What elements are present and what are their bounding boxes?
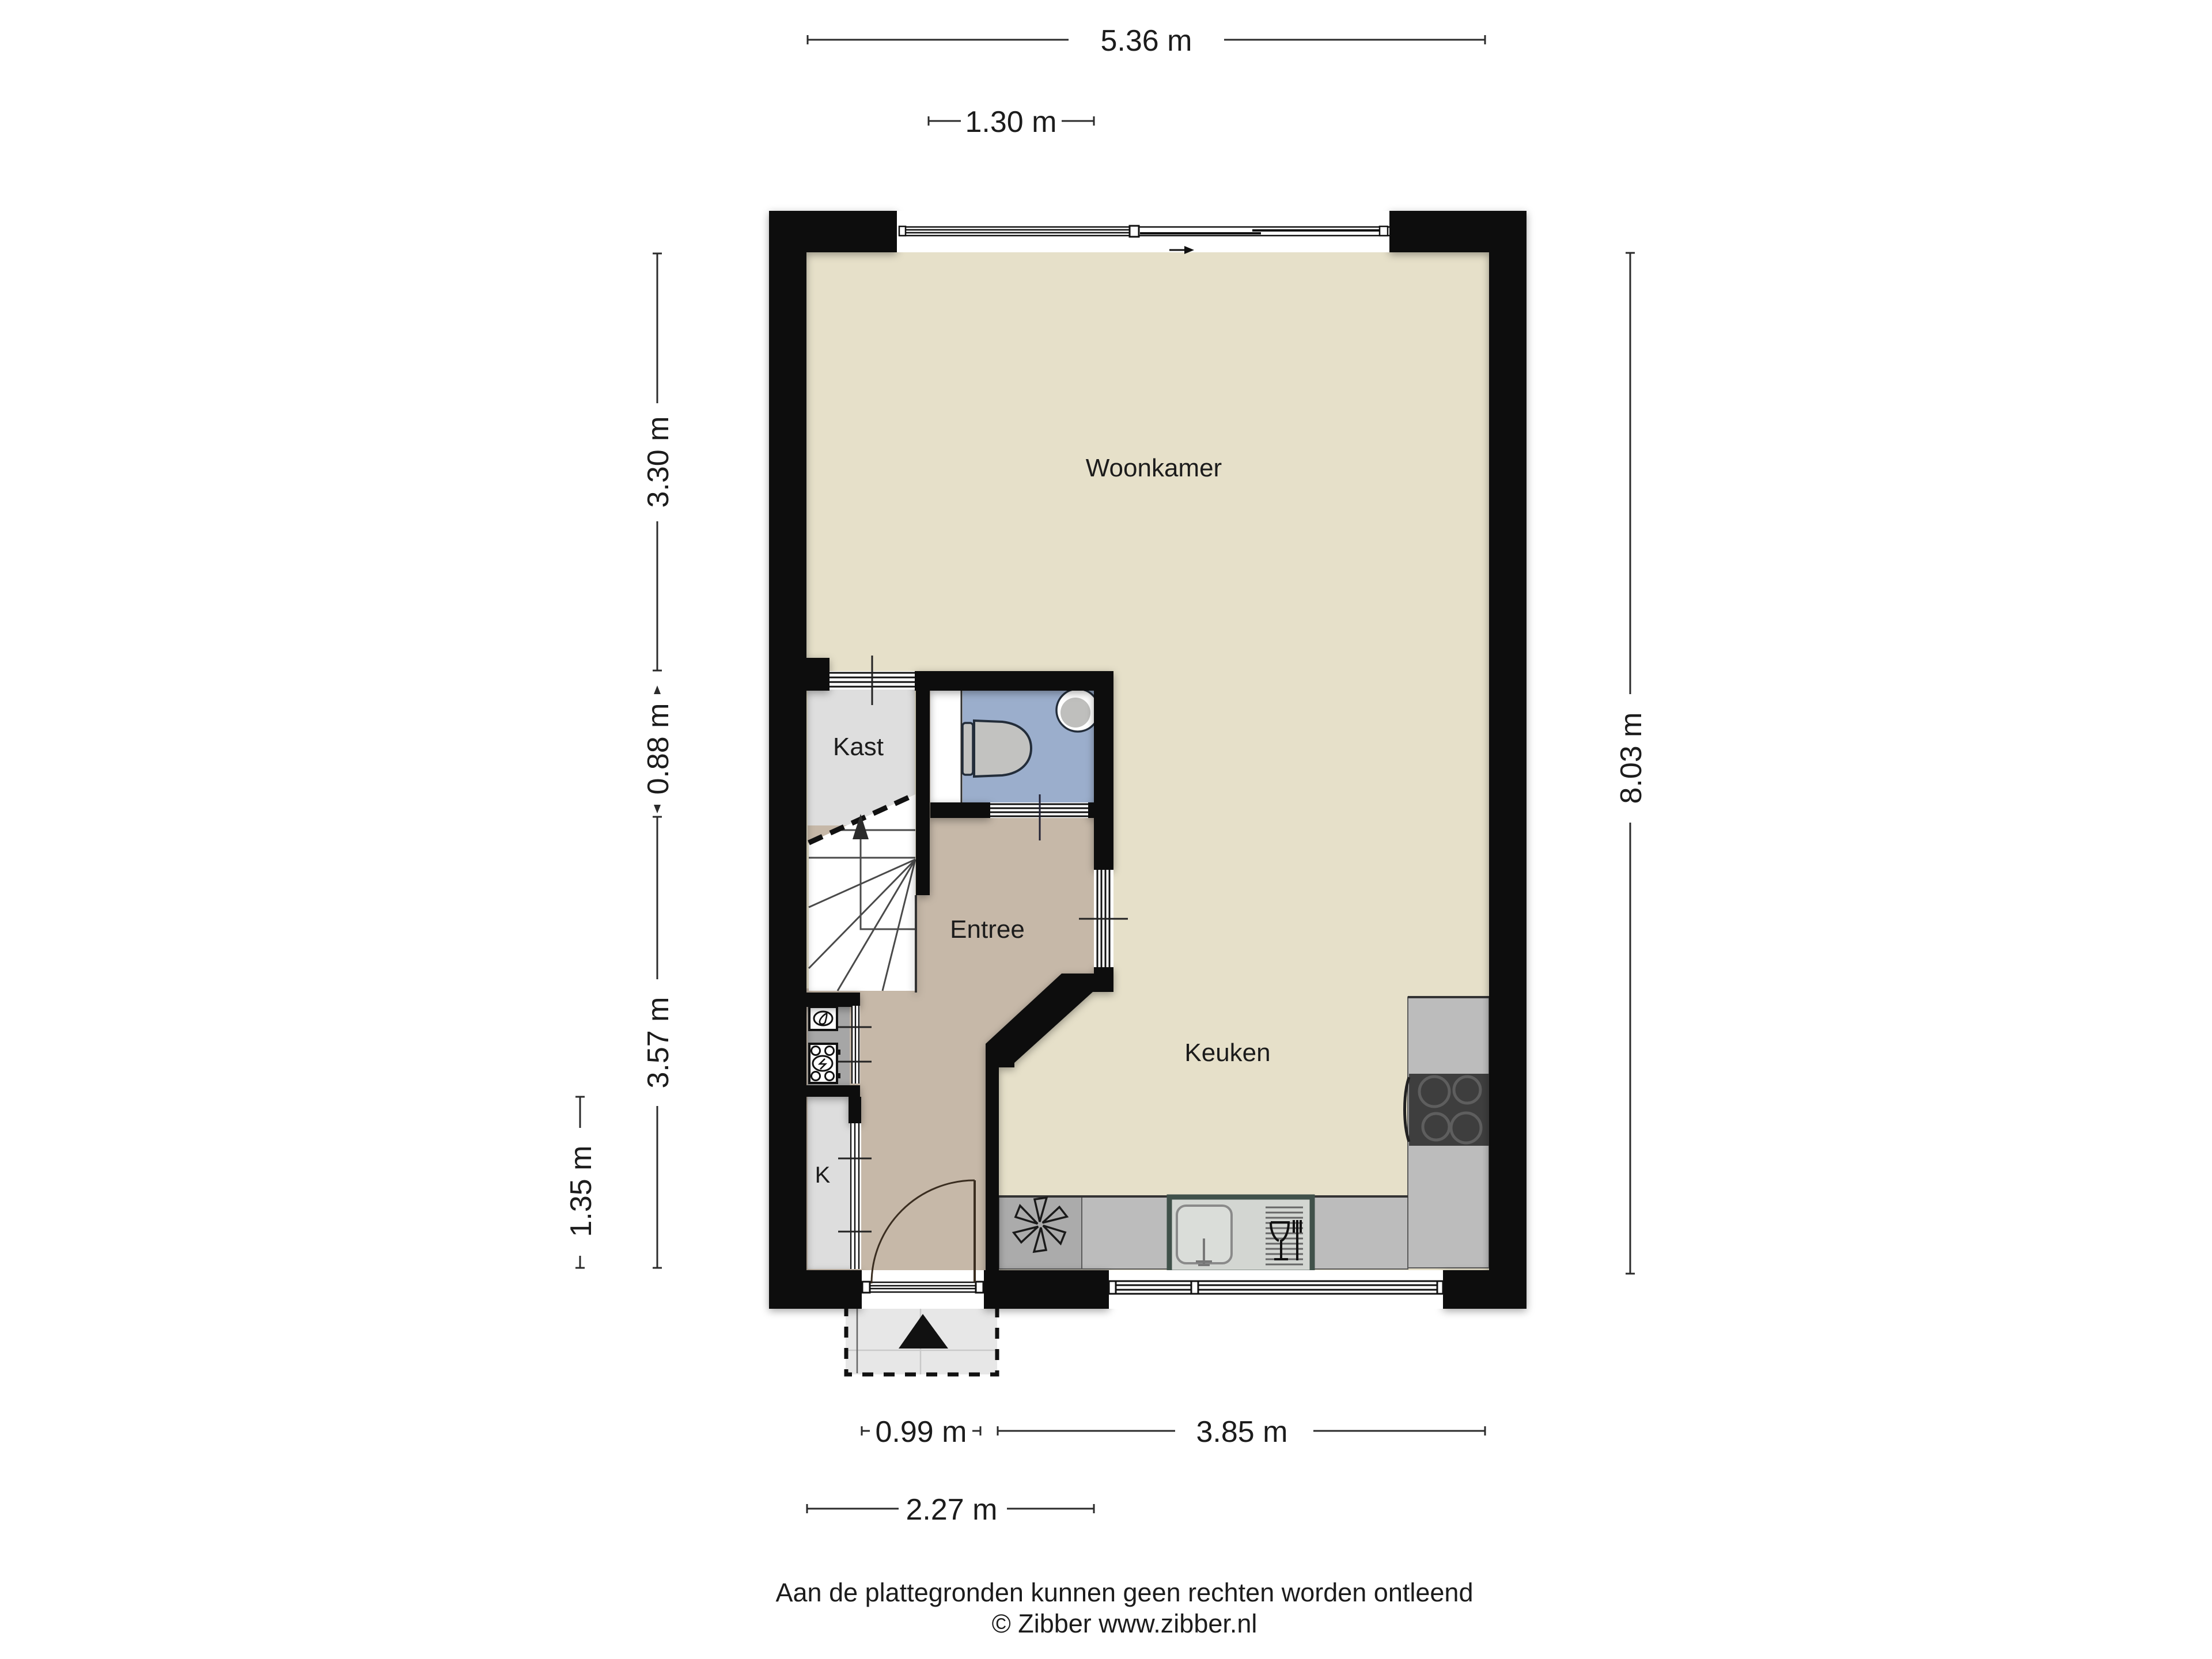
svg-text:Aan de plattegronden kunnen ge: Aan de plattegronden kunnen geen rechten… [776, 1578, 1474, 1607]
svg-text:K: K [815, 1162, 831, 1188]
svg-text:0.99 m: 0.99 m [876, 1415, 967, 1449]
svg-text:Kast: Kast [833, 733, 884, 761]
svg-text:0.88 m: 0.88 m [642, 703, 675, 795]
svg-text:3.57 m: 3.57 m [642, 997, 675, 1089]
svg-text:3.30 m: 3.30 m [642, 416, 675, 508]
svg-text:5.36 m: 5.36 m [1101, 24, 1192, 58]
svg-text:1.30 m: 1.30 m [965, 105, 1057, 139]
svg-text:1.35 m: 1.35 m [565, 1146, 598, 1237]
svg-text:© Zibber www.zibber.nl: © Zibber www.zibber.nl [992, 1609, 1257, 1638]
svg-text:Keuken: Keuken [1184, 1039, 1270, 1067]
svg-text:3.85 m: 3.85 m [1196, 1415, 1288, 1449]
svg-text:2.27 m: 2.27 m [906, 1493, 998, 1527]
svg-text:Woonkamer: Woonkamer [1086, 454, 1222, 482]
svg-text:Entree: Entree [950, 915, 1025, 944]
svg-text:8.03 m: 8.03 m [1615, 713, 1648, 804]
